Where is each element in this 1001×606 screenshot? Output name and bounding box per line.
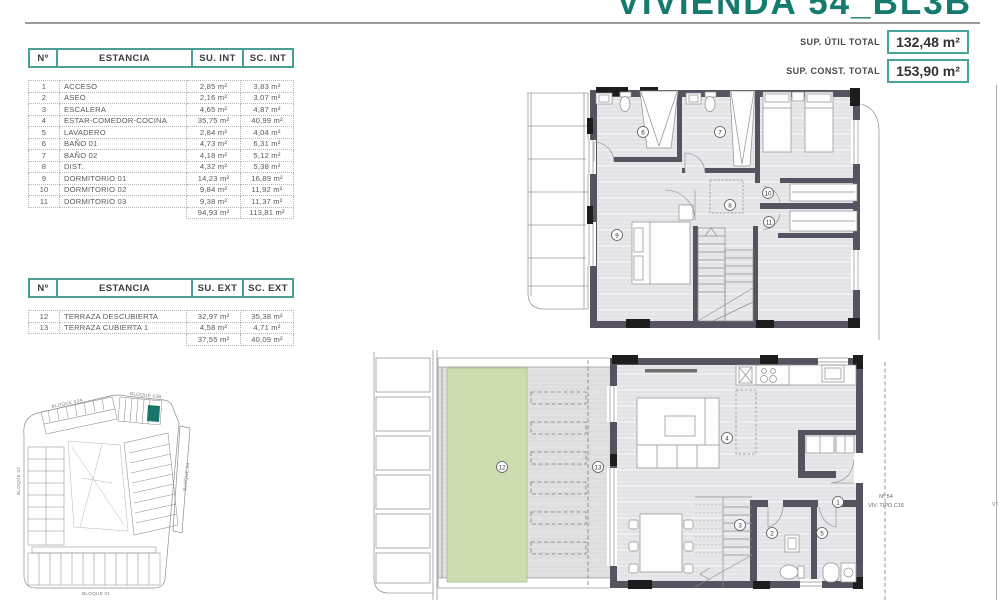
col-header-su: SU. EXT [191,280,242,296]
svg-text:10: 10 [764,190,772,197]
site-label-bloque-01: BLOQUE 01 [82,591,110,596]
exterior-table-body: 12TERRAZA DESCUBIERTA32,97 m²35,38 m² 13… [28,310,294,346]
svg-text:2: 2 [770,530,774,537]
window [818,355,848,365]
interior-total-su: 94,93 m² [187,207,241,219]
table-row: 10DORMITORIO 029,84 m²11,92 m² [29,184,294,196]
entry-opening [854,453,864,483]
window [586,222,596,266]
col-header-su: SU. INT [191,50,242,66]
plot-boundary-line [861,104,879,340]
washer [841,563,856,582]
exterior-total-su: 37,55 m² [187,334,241,346]
toilet [780,565,798,579]
table-row: 12TERRAZA DESCUBIERTA32,97 m²35,38 m² [29,311,294,323]
svg-text:13: 13 [594,464,602,471]
upper-floor-plan: 6 7 8 9 10 11 [500,78,980,340]
table-row: 2ASEO2,16 m²3,07 m² [29,92,294,104]
sliding-door [607,386,617,422]
svg-text:1: 1 [836,499,840,506]
window [851,120,861,164]
chair [629,542,638,551]
window [586,140,596,174]
svg-text:6: 6 [641,129,645,136]
site-key-plan: BLOQUE 03A BLOQUE 03B BLOQUE 02 BLOQUE 0… [12,383,217,603]
table-row: 13TERRAZA CUBIERTA 14,58 m²4,71 m² [29,322,294,334]
room-number-2: 2 [767,528,778,539]
interior-table-body: 1ACCESO2,85 m²3,83 m² 2ASEO2,16 m²3,07 m… [28,80,294,219]
laundry-sink [823,563,839,582]
room-number-11: 11 [764,217,775,228]
table-row: 8DIST.4,32 m²5,38 m² [29,161,294,173]
site-boundary [24,395,190,588]
room-number-6: 6 [638,127,649,138]
svg-text:8: 8 [728,202,732,209]
col-header-room: ESTANCIA [56,50,191,66]
svg-text:5: 5 [820,530,824,537]
unit-number: Nº 54 [879,493,893,500]
table-row: 6BAÑO 014,73 m²6,31 m² [29,138,294,150]
sup-util-row: SUP. ÚTIL TOTAL 132,48 m² [600,30,969,54]
nightstand [679,205,693,220]
room-number-8: 8 [725,200,736,211]
chair [684,564,693,573]
svg-text:9: 9 [615,232,619,239]
dining-table [640,514,682,572]
col-header-num: Nº [30,50,56,66]
chair [629,520,638,529]
sheet-edge-line [996,85,997,600]
room-number-10: 10 [763,188,774,199]
interior-areas-table: Nº ESTANCIA SU. INT SC. INT 1ACCESO2,85 … [28,48,294,219]
coffee-table [665,416,695,436]
sup-util-label: SUP. ÚTIL TOTAL [800,37,880,47]
site-label-bloque-02: BLOQUE 02 [16,467,21,495]
terrace [438,358,610,588]
floorplan-sheet: { "header": { "title": "VIVIENDA 54_BL3B… [0,0,1001,606]
header-divider [25,22,980,24]
interior-total-sc: 113,81 m² [241,207,294,219]
room-number-4: 4 [722,433,733,444]
unit-reference: Nº 54 VIV. TIPO C16 VT [868,362,998,600]
site-label-bloque-04: BLOQUE 04 [182,462,190,491]
sup-const-label: SUP. CONST. TOTAL [786,66,880,76]
room-number-5: 5 [817,528,828,539]
shower [640,91,678,148]
room-number-1: 1 [833,497,844,508]
table-row: 5LAVADERO2,84 m²4,04 m² [29,127,294,139]
exterior-table-header: Nº ESTANCIA SU. EXT SC. EXT [28,278,294,298]
site-block-01 [28,547,160,585]
highlighted-unit [147,405,160,422]
title-area: VIVIENDA 54_BL3B [600,0,972,22]
bed [805,92,833,152]
terrace-lawn [447,368,527,582]
sliding-door [607,468,617,566]
window [851,250,861,290]
room-number-12: 12 [497,462,508,473]
table-row: 1ACCESO2,85 m²3,83 m² [29,81,294,93]
table-row: 4ESTAR-COMEDOR-COCINA35,75 m²40,99 m² [29,115,294,127]
ground-floor-plan: Nº 54 VIV. TIPO C16 VT 1 2 3 4 5 12 13 [370,350,1001,606]
bed [632,222,690,284]
chair [684,542,693,551]
table-row: 9DORMITORIO 0114,23 m²16,89 m² [29,173,294,185]
tv-unit [645,369,697,373]
chair [629,564,638,573]
site-inner-paths [68,441,128,531]
window [800,579,822,589]
col-header-room: ESTANCIA [56,280,191,296]
site-label-bloque-03a: BLOQUE 03A [51,397,84,409]
col-header-num: Nº [30,280,56,296]
interior-table-header: Nº ESTANCIA SU. INT SC. INT [28,48,294,68]
pergola-outline [527,93,588,309]
unit-type: VIV. TIPO C16 [868,503,904,509]
nightstand [792,92,804,101]
svg-text:4: 4 [725,435,729,442]
bed [763,92,791,152]
exterior-total-sc: 40,09 m² [241,334,294,346]
sup-util-value: 132,48 m² [887,30,969,54]
room-number-9: 9 [612,230,623,241]
col-header-sc: SC. INT [242,50,292,66]
room-number-13: 13 [593,462,604,473]
col-header-sc: SC. EXT [242,280,292,296]
totals-row: 37,55 m²40,09 m² [29,334,294,346]
svg-text:11: 11 [766,219,773,226]
page-title: VIVIENDA 54_BL3B [616,0,972,22]
room-number-3: 3 [735,520,746,531]
room-number-7: 7 [715,127,726,138]
exterior-areas-table: Nº ESTANCIA SU. EXT SC. EXT 12TERRAZA DE… [28,278,294,346]
table-row: 11DORMITORIO 039,38 m²11,37 m² [29,196,294,208]
svg-text:12: 12 [498,464,506,471]
totals-row: 94,93 m²113,81 m² [29,207,294,219]
site-block-02 [28,447,64,545]
svg-text:7: 7 [718,129,722,136]
planter-row [374,350,437,600]
site-block-04 [124,433,178,535]
table-row: 3ESCALERA4,65 m²4,87 m² [29,104,294,116]
svg-text:3: 3 [738,522,742,529]
table-row: 7BAÑO 024,18 m²5,12 m² [29,150,294,162]
closet [790,184,857,201]
chair [684,520,693,529]
sink [785,535,799,552]
